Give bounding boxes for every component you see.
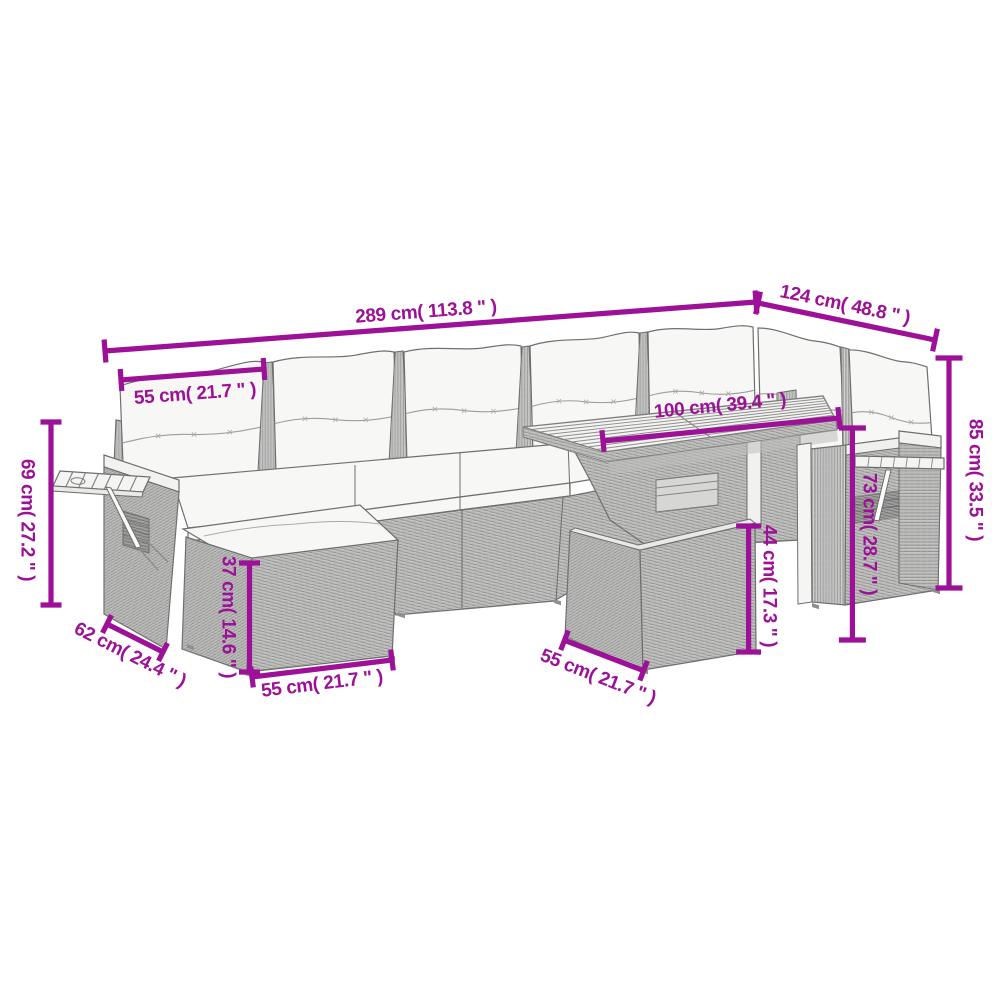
svg-text:37 cm( 14.6 " ): 37 cm( 14.6 " ) xyxy=(218,556,239,678)
svg-text:69 cm( 27.2 " ): 69 cm( 27.2 " ) xyxy=(17,459,38,581)
svg-text:44 cm( 17.3 " ): 44 cm( 17.3 " ) xyxy=(759,525,780,647)
svg-text:73 cm( 28.7 " ): 73 cm( 28.7 " ) xyxy=(859,473,880,595)
svg-text:85 cm( 33.5 " ): 85 cm( 33.5 " ) xyxy=(965,419,986,541)
